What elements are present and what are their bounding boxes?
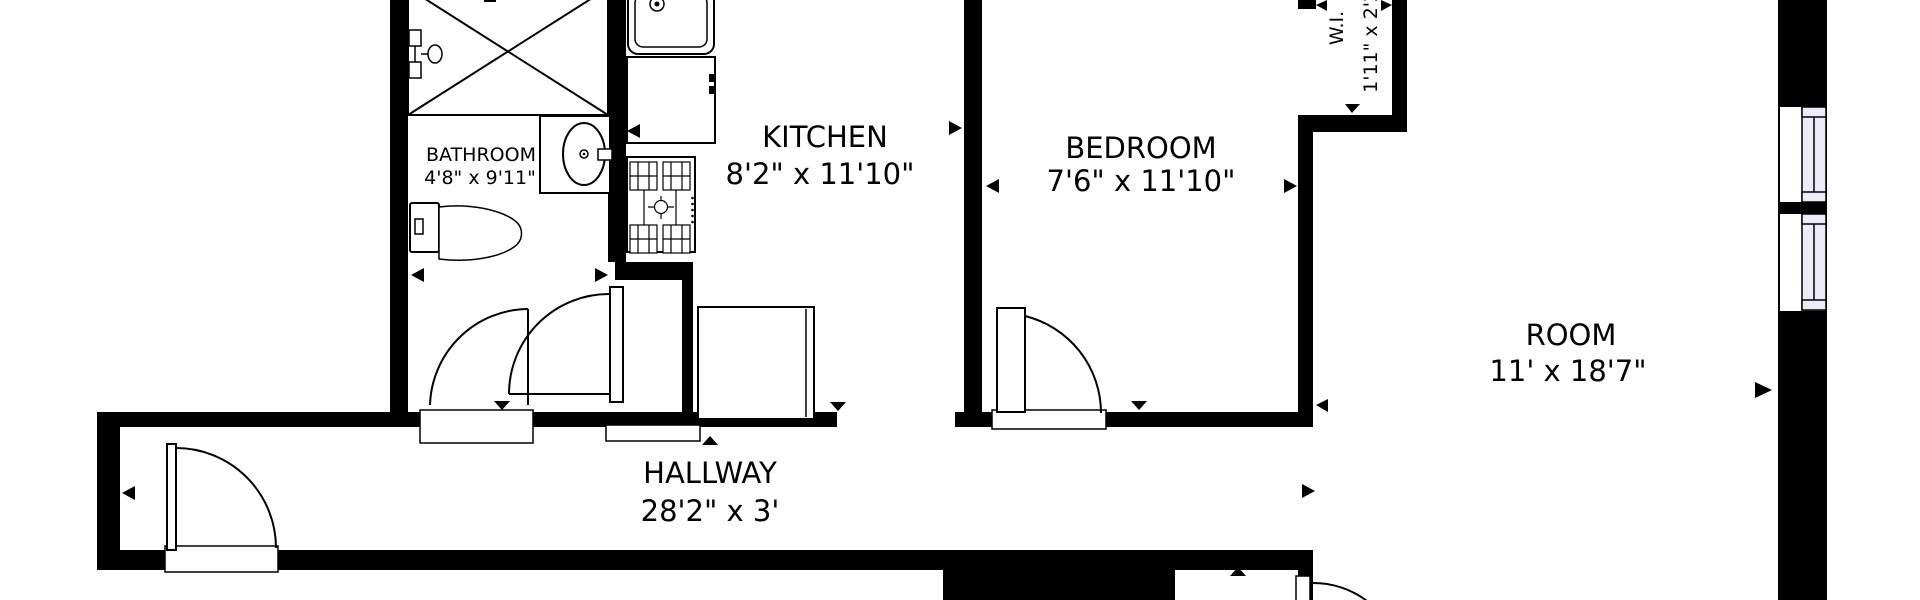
door-leaf-open [610,287,623,402]
walk-in-closet-label: W.I. [1326,11,1348,45]
shower [408,0,608,115]
kitchen-counter [627,57,715,143]
bedroom-dimensions: 7'6" x 11'10" [1047,164,1236,198]
threshold-bathroom [420,410,533,443]
wall-hallway-top-c [1106,412,1313,427]
kitchen-sink [628,0,714,54]
wall-hallway-left [97,412,120,570]
window-unit-top [1802,107,1826,202]
wall-bedroom-door-corner [955,412,992,427]
plan-background [0,0,1920,600]
hallway-dimensions: 28'2" x 3' [641,494,780,528]
refrigerator [698,307,814,419]
bathroom-dimensions: 4'8" x 9'11" [424,167,536,189]
room-label: ROOM [1526,318,1617,352]
wall-wic-left-stub [1298,0,1316,9]
threshold-alcove [606,425,700,441]
door-leaf-open [997,308,1025,412]
wall-wic-bottom [1298,115,1407,132]
walk-in-closet-dimensions: 1'11" x 2'2" [1360,0,1382,93]
wall-lower-room-block [943,566,1175,600]
shower-arm-cut [484,0,496,2]
stove [627,157,695,253]
door-leaf-open [167,444,176,550]
wall-alcove-top [615,262,693,280]
kitchen-dimensions: 8'2" x 11'10" [726,157,915,191]
hallway-label: HALLWAY [643,456,777,490]
window-divider [1780,202,1825,214]
threshold-lower-room [1296,576,1310,600]
window-unit-bottom [1802,214,1826,310]
kitchen-label: KITCHEN [762,120,888,154]
windows [1780,107,1826,311]
wall-hallway-bottom-a [97,550,165,570]
bathroom-sink [540,116,612,193]
wall-bathroom-left [390,0,408,427]
room-dimensions: 11' x 18'7" [1489,354,1646,388]
wall-bedroom-right [1298,115,1313,427]
wall-wic-right [1392,0,1407,132]
floor-plan-canvas: BATHROOM 4'8" x 9'11" KITCHEN 8'2" x 11'… [0,0,1920,600]
bathroom-label: BATHROOM [426,144,536,166]
bedroom-label: BEDROOM [1065,131,1216,165]
floor-plan: BATHROOM 4'8" x 9'11" KITCHEN 8'2" x 11'… [0,0,1920,600]
wall-alcove-right [682,280,693,412]
wall-kitchen-bedroom [964,0,982,427]
threshold-hallway-entry [165,546,278,572]
wall-hallway-top-a [97,412,420,427]
